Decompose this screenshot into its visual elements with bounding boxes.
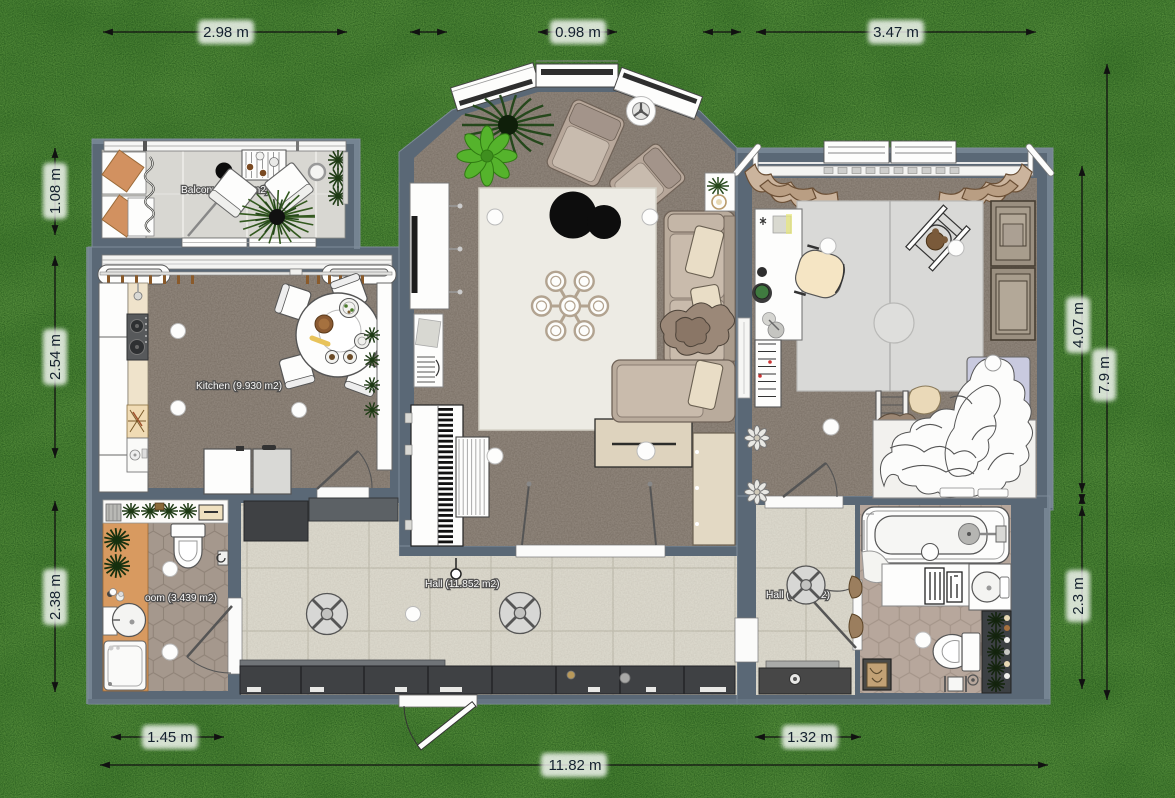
svg-text:11.82 m: 11.82 m <box>548 757 601 774</box>
svg-text:oom (3.439 m2): oom (3.439 m2) <box>145 593 217 604</box>
svg-text:2.38 m: 2.38 m <box>47 574 64 620</box>
svg-text:Hall (11.852 m2): Hall (11.852 m2) <box>425 579 500 590</box>
svg-text:1.32 m: 1.32 m <box>787 729 833 746</box>
svg-text:Kitchen (9.930 m2): Kitchen (9.930 m2) <box>196 381 282 392</box>
svg-text:4.07 m: 4.07 m <box>1070 302 1087 348</box>
svg-text:1.45 m: 1.45 m <box>147 729 193 746</box>
svg-text:2.54 m: 2.54 m <box>47 334 64 380</box>
svg-text:1.08 m: 1.08 m <box>47 168 64 214</box>
svg-text:2.98 m: 2.98 m <box>203 24 249 41</box>
svg-text:0.98 m: 0.98 m <box>555 24 601 41</box>
svg-text:2.3 m: 2.3 m <box>1070 577 1087 615</box>
svg-text:3.47 m: 3.47 m <box>873 24 919 41</box>
svg-text:7.9 m: 7.9 m <box>1096 356 1113 394</box>
